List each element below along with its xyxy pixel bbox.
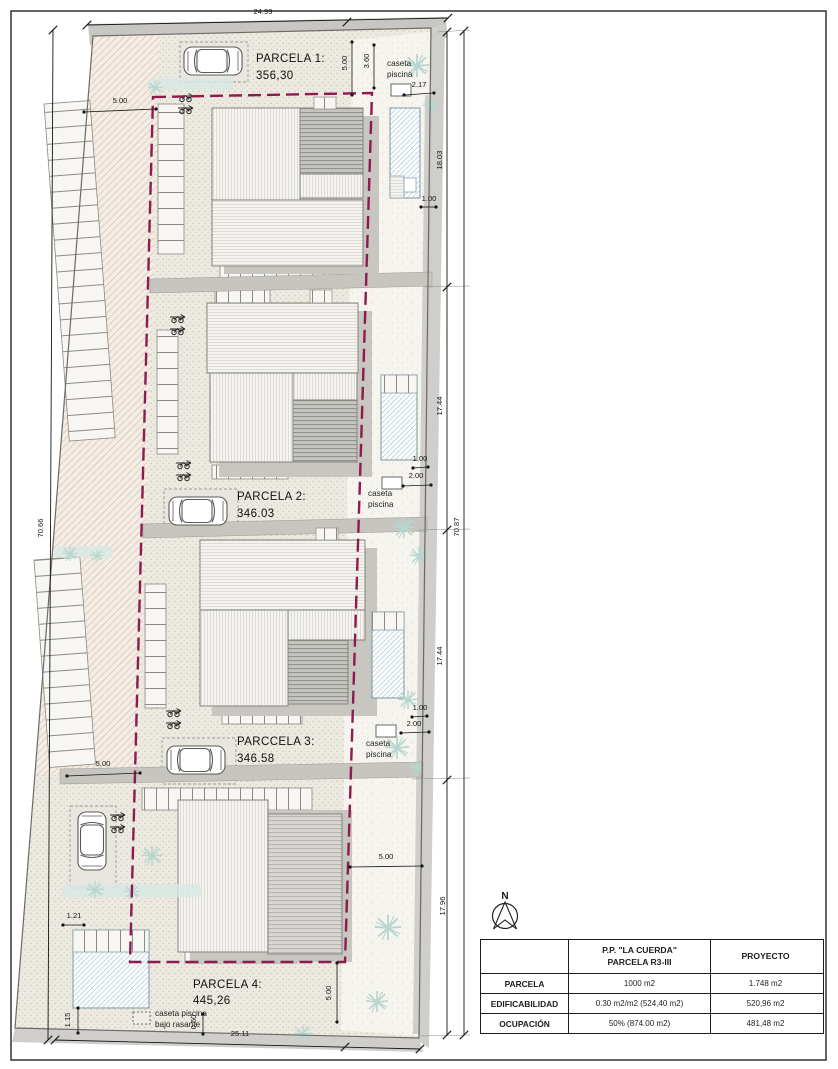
dim-100-p3: 1.00 [410, 703, 428, 719]
svg-text:1.00: 1.00 [413, 454, 428, 463]
north-arrow: N [493, 891, 518, 929]
summary-table: P.P. "LA CUERDA" PARCELA R3-III PROYECTO… [480, 939, 824, 1034]
svg-text:70.87: 70.87 [452, 517, 461, 536]
svg-text:5.00: 5.00 [379, 852, 394, 861]
caseta-bajo-line2: bajo rasante [155, 1020, 201, 1029]
svg-text:caseta: caseta [366, 739, 391, 748]
summary-table-project-header: PROYECTO [710, 940, 820, 973]
dim-100-p2: 1.00 [411, 454, 429, 470]
svg-text:piscina: piscina [366, 750, 392, 759]
caseta-bajo-line1: caseta piscina [155, 1009, 207, 1018]
svg-text:25.11: 25.11 [231, 1029, 249, 1038]
caseta-bajo-rasante-rect [133, 1012, 150, 1024]
dim-right-total: 70.87 [452, 27, 468, 1039]
table-row: PARCELA 1000 m2 1.748 m2 [481, 973, 823, 993]
svg-text:17.44: 17.44 [435, 646, 444, 665]
parcel-3-area: 346.58 [237, 753, 275, 765]
svg-text:17.96: 17.96 [438, 896, 447, 915]
svg-text:2.00: 2.00 [407, 719, 422, 728]
parcel-3-label: PARCCELA 3: [237, 736, 315, 748]
svg-text:2.00: 2.00 [409, 471, 424, 480]
svg-text:caseta: caseta [368, 489, 393, 498]
north-label: N [501, 891, 508, 902]
svg-text:piscina: piscina [368, 500, 394, 509]
pool-3 [372, 612, 404, 698]
svg-text:5.00: 5.00 [340, 56, 349, 71]
svg-text:1.15: 1.15 [63, 1013, 72, 1028]
summary-table-plan-header: P.P. "LA CUERDA" PARCELA R3-III [568, 940, 710, 973]
table-row: EDIFICABILIDAD 0.30 m2/m2 (524,40 m2) 52… [481, 993, 823, 1013]
svg-text:17.44: 17.44 [435, 396, 444, 415]
svg-text:3.60: 3.60 [362, 54, 371, 69]
svg-text:1.21: 1.21 [67, 911, 82, 920]
svg-text:5.00: 5.00 [324, 986, 333, 1001]
summary-table-corner-cell [481, 940, 568, 973]
svg-text:2.17: 2.17 [412, 80, 427, 89]
pool-1 [390, 108, 420, 198]
parcel-2-label: PARCELA 2: [237, 491, 306, 503]
parcel-1-area: 356,30 [256, 70, 294, 82]
house-4 [178, 800, 352, 962]
svg-text:1.00: 1.00 [422, 194, 437, 203]
pool-2 [381, 375, 417, 460]
svg-text:18.03: 18.03 [435, 150, 444, 169]
svg-text:5.00: 5.00 [113, 96, 128, 105]
pool-4 [73, 930, 149, 1008]
house-2 [207, 290, 372, 477]
house-1 [212, 97, 379, 274]
drawing-sheet: 24.99 70.66 25.11 18.03 17.44 17.44 17.9… [0, 0, 838, 1069]
parcel-4-area: 445,26 [193, 995, 231, 1007]
svg-text:piscina: piscina [387, 70, 413, 79]
svg-text:70.66: 70.66 [36, 518, 45, 537]
svg-text:1.00: 1.00 [413, 703, 428, 712]
house-3 [200, 528, 377, 716]
parcel-4-label: PARCELA 4: [193, 979, 262, 991]
site-plan: 24.99 70.66 25.11 18.03 17.44 17.44 17.9… [0, 0, 838, 1069]
svg-text:5.00: 5.00 [96, 759, 111, 768]
svg-text:24.99: 24.99 [253, 7, 272, 16]
parcel-1-label: PARCELA 1: [256, 53, 325, 65]
svg-text:caseta: caseta [387, 59, 412, 68]
parcel-2-area: 346.03 [237, 508, 275, 520]
table-row: OCUPACIÓN 50% (874.00 m2) 481,48 m2 [481, 1013, 823, 1033]
